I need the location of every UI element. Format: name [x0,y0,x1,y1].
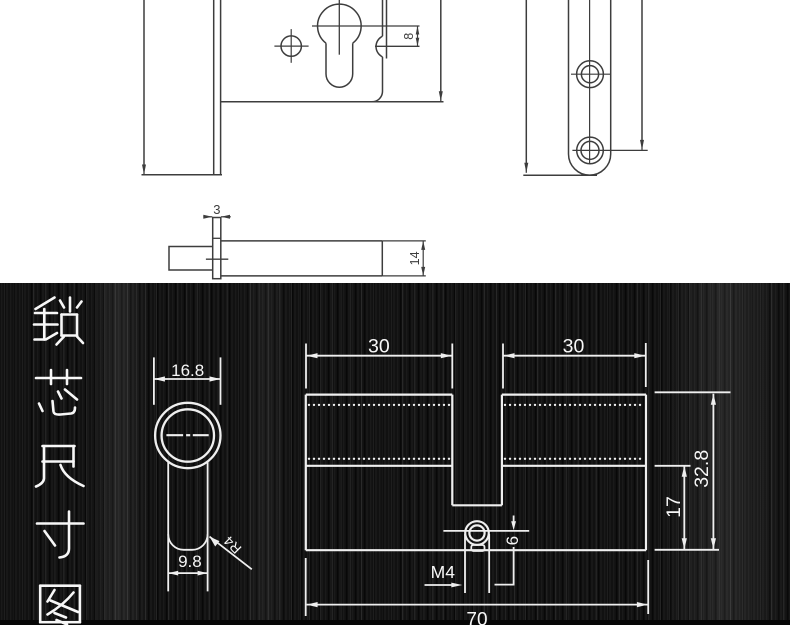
svg-text:30: 30 [563,336,585,358]
svg-text:14: 14 [408,251,422,265]
svg-text:17: 17 [663,496,685,518]
svg-text:70: 70 [466,610,487,625]
svg-text:9.8: 9.8 [178,552,202,571]
svg-text:32.8: 32.8 [691,450,713,488]
svg-text:6: 6 [503,536,522,545]
svg-text:M4: M4 [431,562,456,582]
svg-text:30: 30 [368,336,390,358]
svg-text:3: 3 [213,202,220,217]
svg-text:16.8: 16.8 [171,361,204,380]
svg-text:8: 8 [402,33,416,40]
